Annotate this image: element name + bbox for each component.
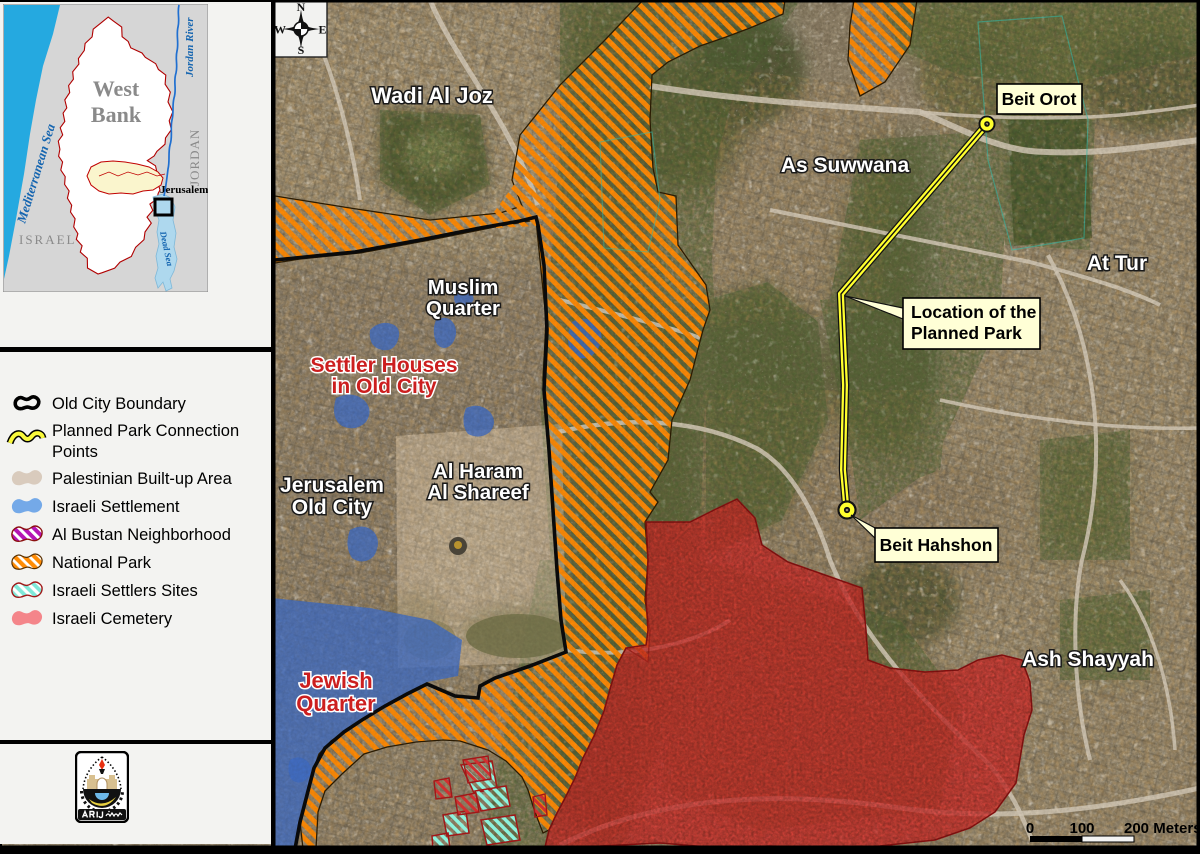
svg-text:Muslim: Muslim	[428, 276, 499, 299]
svg-text:Jerusalem: Jerusalem	[280, 474, 384, 497]
svg-text:S: S	[298, 43, 305, 57]
svg-text:As Suwwana: As Suwwana	[781, 154, 910, 177]
svg-text:Bank: Bank	[91, 102, 142, 127]
svg-text:Israeli Settlers Sites: Israeli Settlers Sites	[52, 582, 198, 600]
svg-text:Old City Boundary: Old City Boundary	[52, 395, 187, 413]
svg-text:Beit Hahshon: Beit Hahshon	[880, 535, 993, 555]
svg-text:Jewish: Jewish	[299, 668, 372, 693]
svg-text:Planned Park Connection: Planned Park Connection	[52, 422, 239, 440]
svg-text:Wadi Al Joz: Wadi Al Joz	[371, 83, 493, 108]
svg-text:Al Haram: Al Haram	[433, 460, 523, 483]
svg-text:JORDAN: JORDAN	[187, 129, 202, 186]
svg-text:Beit Orot: Beit Orot	[1002, 89, 1077, 109]
svg-text:E: E	[318, 23, 326, 37]
svg-text:Points: Points	[52, 443, 98, 461]
svg-text:200 Meters: 200 Meters	[1124, 820, 1200, 837]
svg-text:Old City: Old City	[292, 496, 373, 519]
svg-text:Jerusalem: Jerusalem	[160, 184, 208, 196]
svg-text:Al Bustan Neighborhood: Al Bustan Neighborhood	[52, 526, 231, 544]
svg-text:Israeli Settlement: Israeli Settlement	[52, 498, 180, 516]
svg-text:100: 100	[1069, 820, 1094, 837]
svg-text:ISRAEL: ISRAEL	[19, 232, 77, 247]
svg-text:W: W	[274, 23, 286, 37]
svg-text:West: West	[93, 76, 140, 101]
svg-text:National Park: National Park	[52, 554, 152, 572]
svg-text:Quarter: Quarter	[426, 297, 500, 320]
svg-text:At Tur: At Tur	[1087, 252, 1147, 275]
svg-text:Planned Park: Planned Park	[911, 323, 1022, 343]
svg-text:Al Shareef: Al Shareef	[427, 481, 529, 504]
svg-text:in Old City: in Old City	[332, 375, 437, 398]
svg-text:Location of the: Location of the	[911, 302, 1037, 322]
svg-text:Palestinian Built-up Area: Palestinian Built-up Area	[52, 470, 233, 488]
svg-text:Quarter: Quarter	[296, 691, 376, 716]
svg-text:Settler Houses: Settler Houses	[310, 354, 457, 377]
svg-text:Ash Shayyah: Ash Shayyah	[1022, 648, 1154, 671]
svg-text:Israeli Cemetery: Israeli Cemetery	[52, 610, 173, 628]
svg-text:Jordan River: Jordan River	[184, 17, 196, 78]
svg-text:0: 0	[1026, 820, 1034, 837]
